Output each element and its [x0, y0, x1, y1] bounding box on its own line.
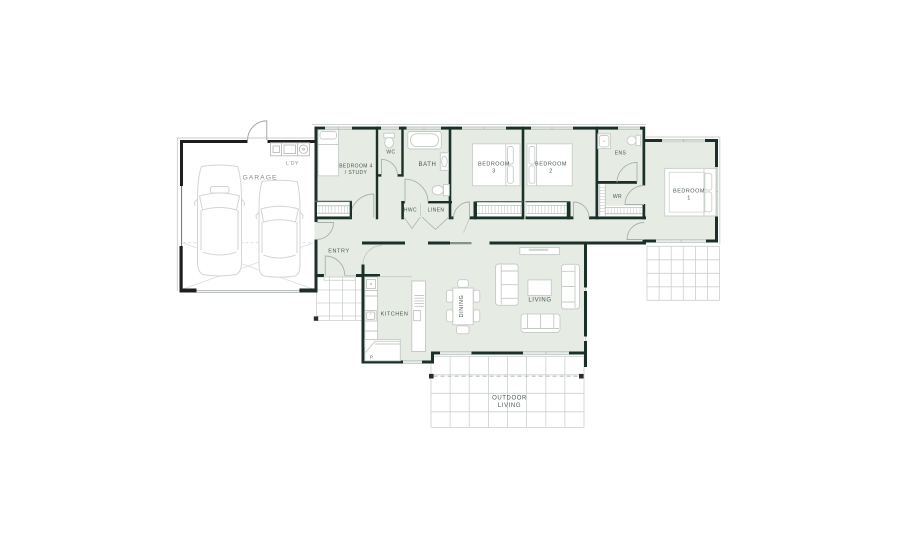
svg-text:OUTDOOR: OUTDOOR [492, 396, 527, 402]
svg-text:LIVING: LIVING [498, 403, 521, 409]
svg-text:LINEN: LINEN [428, 208, 445, 214]
svg-text:P.: P. [370, 355, 374, 360]
svg-text:BEDROOM: BEDROOM [673, 189, 705, 195]
svg-text:2: 2 [549, 169, 553, 175]
svg-text:WR: WR [613, 194, 622, 200]
svg-text:DINING: DINING [459, 295, 465, 318]
svg-text:WC: WC [386, 150, 395, 156]
svg-text:ENS: ENS [615, 151, 627, 157]
svg-text:HWC: HWC [404, 208, 417, 214]
svg-text:GARAGE: GARAGE [242, 175, 277, 182]
svg-text:L'DY: L'DY [286, 161, 299, 167]
svg-text:BEDROOM: BEDROOM [535, 161, 567, 167]
svg-text:ENTRY: ENTRY [328, 249, 350, 255]
svg-text:KITCHEN: KITCHEN [381, 311, 409, 317]
svg-text:/ STUDY: / STUDY [345, 170, 368, 176]
svg-text:BEDROOM: BEDROOM [478, 161, 510, 167]
svg-text:BEDROOM 4: BEDROOM 4 [339, 163, 373, 169]
svg-text:BATH: BATH [419, 162, 437, 168]
svg-text:1: 1 [687, 196, 691, 202]
svg-text:3: 3 [492, 169, 496, 175]
svg-text:LIVING: LIVING [528, 297, 551, 303]
